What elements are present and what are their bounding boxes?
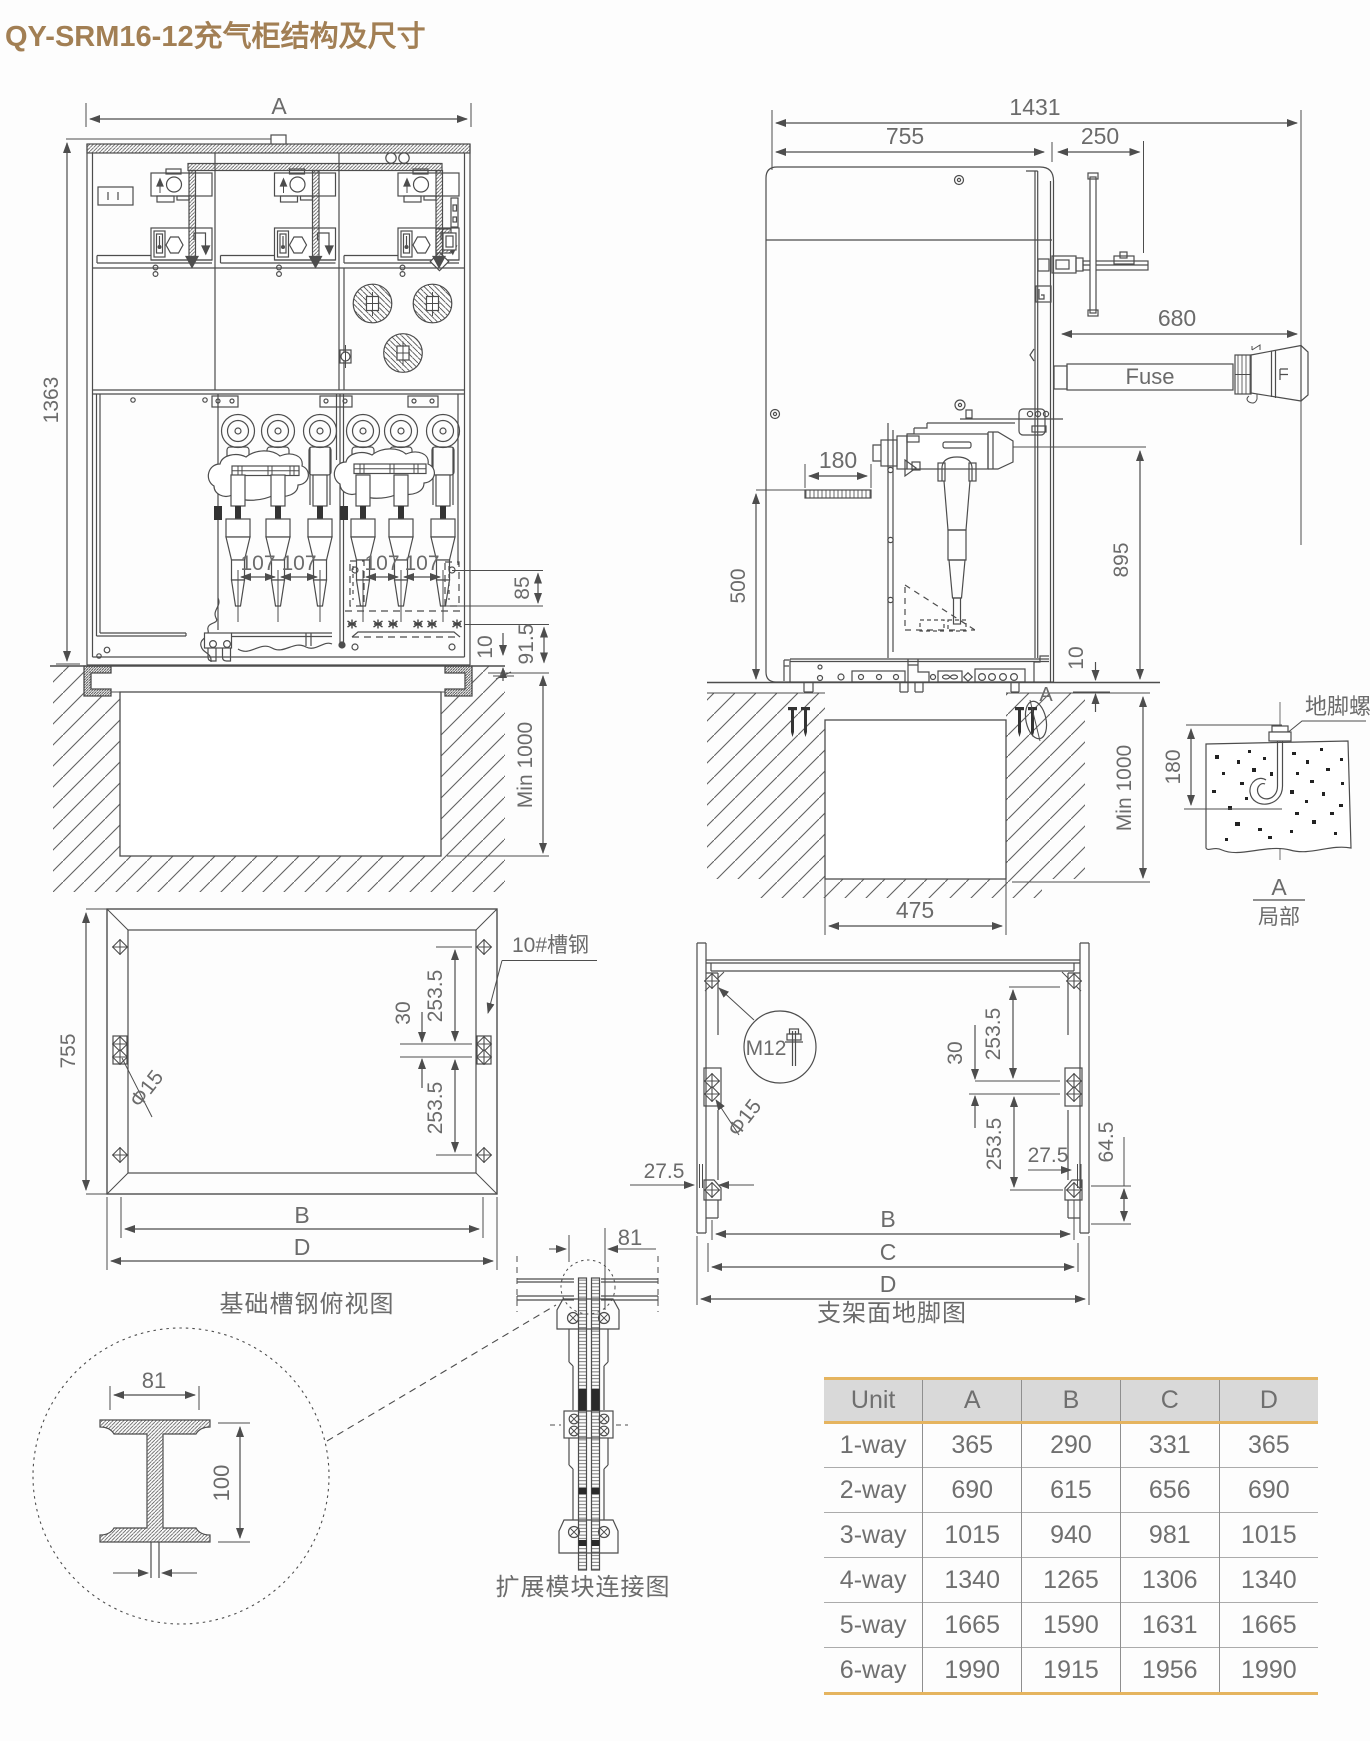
- svg-text:1363: 1363: [40, 377, 63, 424]
- svg-text:D: D: [880, 1271, 897, 1297]
- svg-text:680: 680: [1158, 305, 1196, 331]
- svg-text:M12: M12: [746, 1037, 787, 1060]
- svg-text:1431: 1431: [1009, 94, 1060, 120]
- svg-text:91.5: 91.5: [515, 624, 538, 665]
- svg-text:85: 85: [511, 576, 534, 599]
- svg-text:500: 500: [727, 568, 750, 603]
- svg-text:253.5: 253.5: [424, 970, 447, 1023]
- svg-text:Φ15: Φ15: [723, 1095, 766, 1141]
- svg-text:81: 81: [618, 1225, 642, 1250]
- svg-text:Φ15: Φ15: [125, 1066, 168, 1112]
- svg-text:253.5: 253.5: [982, 1008, 1005, 1061]
- svg-text:C: C: [880, 1239, 897, 1265]
- svg-text:475: 475: [896, 897, 934, 923]
- svg-text:107: 107: [404, 552, 439, 575]
- svg-text:A: A: [1271, 874, 1287, 900]
- svg-text:30: 30: [392, 1001, 415, 1024]
- svg-text:107: 107: [364, 552, 399, 575]
- svg-text:107: 107: [240, 552, 275, 575]
- svg-text:81: 81: [142, 1368, 166, 1393]
- svg-text:180: 180: [819, 447, 857, 473]
- svg-text:局部: 局部: [1258, 906, 1300, 929]
- svg-text:D: D: [294, 1234, 311, 1260]
- svg-text:Fuse: Fuse: [1126, 364, 1175, 389]
- svg-text:10: 10: [474, 635, 497, 658]
- svg-text:支架面地脚图: 支架面地脚图: [817, 1300, 967, 1327]
- svg-text:扩展模块连接图: 扩展模块连接图: [496, 1574, 671, 1601]
- svg-text:30: 30: [944, 1041, 967, 1064]
- svg-text:地脚螺: 地脚螺: [1305, 694, 1370, 719]
- svg-text:27.5: 27.5: [644, 1160, 685, 1183]
- svg-text:253.5: 253.5: [983, 1118, 1006, 1171]
- svg-text:253.5: 253.5: [424, 1082, 447, 1135]
- svg-text:A: A: [1039, 684, 1053, 706]
- svg-text:10: 10: [1065, 646, 1088, 669]
- svg-text:A: A: [271, 93, 287, 119]
- svg-text:10#槽钢: 10#槽钢: [512, 934, 589, 957]
- svg-text:895: 895: [1110, 542, 1133, 577]
- svg-text:64.5: 64.5: [1095, 1122, 1118, 1163]
- svg-text:755: 755: [886, 123, 924, 149]
- svg-text:27.5: 27.5: [1028, 1144, 1069, 1167]
- svg-text:180: 180: [1162, 749, 1185, 784]
- svg-text:B: B: [294, 1202, 309, 1228]
- svg-text:100: 100: [209, 1465, 234, 1502]
- svg-text:B: B: [880, 1206, 895, 1232]
- svg-text:755: 755: [57, 1033, 80, 1068]
- svg-text:250: 250: [1081, 123, 1119, 149]
- svg-text:107: 107: [281, 552, 316, 575]
- svg-text:Min 1000: Min 1000: [514, 722, 537, 808]
- svg-text:基础槽钢俯视图: 基础槽钢俯视图: [220, 1291, 395, 1318]
- svg-text:Min 1000: Min 1000: [1113, 745, 1136, 831]
